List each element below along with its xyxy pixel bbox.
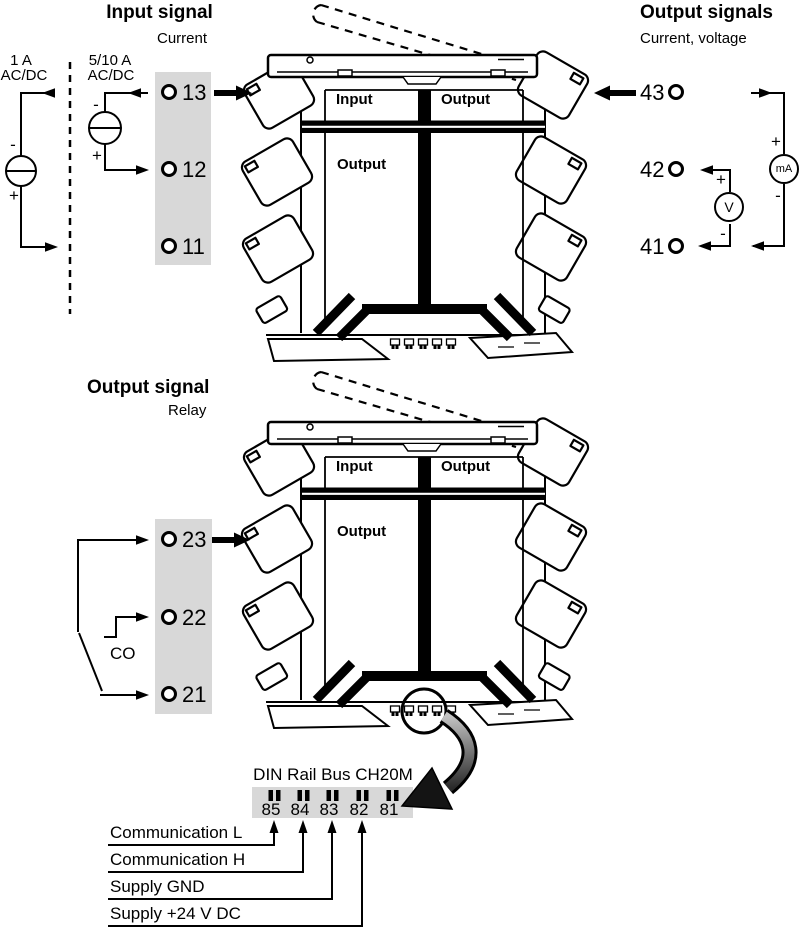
converter-module-bottom-drawing [239, 372, 590, 728]
terminal-circle-41 [668, 238, 684, 254]
terminal-circle-43 [668, 84, 684, 100]
bus-signal-communication-l: Communication L [110, 824, 242, 841]
bus-terminal-81: 81 [376, 802, 402, 818]
output-section-subheading: Current, voltage [640, 31, 747, 48]
bus-signal-supply-gnd: Supply GND [110, 878, 204, 895]
bus-arrow-82 [358, 820, 367, 833]
output-section-heading: Output signals [640, 3, 773, 24]
bus-signal-communication-h: Communication H [110, 851, 245, 868]
voltmeter-minus-sign: - [715, 226, 731, 242]
wiring-diagram-page: Input signal Current Output signals Curr… [0, 0, 800, 928]
module1-input-label: Input [336, 92, 373, 109]
milliammeter-symbol: mA [769, 154, 799, 184]
terminal-number-11: 11 [182, 236, 205, 258]
main-source-minus-sign: - [88, 97, 104, 113]
alt-source-plus-sign: + [6, 188, 22, 204]
terminal-number-42: 42 [640, 159, 664, 181]
terminal-circle-13 [161, 84, 177, 100]
bus-arrow-84 [299, 820, 308, 833]
input-section-subheading: Current [157, 31, 207, 48]
voltmeter-label: V [724, 199, 733, 215]
terminal-circle-23 [161, 531, 177, 547]
relay-section-subheading: Relay [168, 403, 206, 420]
milliammeter-top-arrow [759, 88, 772, 98]
alt-source-wiring [6, 93, 54, 247]
module2-output-bottom-label: Output [337, 524, 386, 541]
terminal-number-41: 41 [640, 236, 664, 258]
milliammeter-plus-sign: + [768, 134, 784, 150]
bus-terminal-84: 84 [287, 802, 313, 818]
voltmeter-plus-sign: + [713, 172, 729, 188]
relay-contact-label: CO [110, 645, 136, 664]
relay-nc-arrow [136, 690, 149, 700]
module2-input-label: Input [336, 459, 373, 476]
relay-co-contact-wiring [78, 540, 136, 695]
terminal-circle-11 [161, 238, 177, 254]
main-source-type: AC/DC [87, 68, 135, 85]
main-source-feed-arrow [136, 165, 149, 175]
module2-output-top-label: Output [441, 459, 490, 476]
terminal-number-21: 21 [182, 684, 206, 706]
main-source-plus-sign: + [89, 148, 105, 164]
voltmeter-bottom-arrow [698, 241, 711, 251]
alt-source-type: AC/DC [0, 68, 48, 85]
terminal-circle-21 [161, 686, 177, 702]
relay-no-arrow [136, 612, 149, 622]
voltmeter-top-arrow [700, 165, 713, 175]
terminal-number-13: 13 [182, 82, 206, 104]
bus-terminal-83: 83 [316, 802, 342, 818]
voltmeter-symbol: V [714, 192, 744, 222]
alt-source-return-arrow [42, 88, 55, 98]
milliammeter-label: mA [776, 163, 793, 175]
alt-source-minus-sign: - [5, 137, 21, 153]
terminal-circle-12 [161, 161, 177, 177]
bus-arrow-83 [328, 820, 337, 833]
main-source-return-arrow [128, 88, 141, 98]
diagram-line-art [0, 0, 800, 928]
terminal-circle-22 [161, 609, 177, 625]
converter-module-top-drawing [239, 5, 590, 361]
terminal-number-22: 22 [182, 607, 206, 629]
module1-output-top-label: Output [441, 92, 490, 109]
relay-section-heading: Output signal [87, 378, 209, 399]
milliammeter-minus-sign: - [770, 188, 786, 204]
terminal-circle-42 [668, 161, 684, 177]
alt-source-feed-arrow [45, 242, 58, 252]
terminal-number-43: 43 [640, 82, 664, 104]
bus-terminal-82: 82 [346, 802, 372, 818]
milliammeter-bottom-arrow [751, 241, 764, 251]
bus-terminal-85: 85 [258, 802, 284, 818]
terminal-number-12: 12 [182, 159, 206, 181]
terminal-number-23: 23 [182, 529, 206, 551]
module1-output-bottom-label: Output [337, 157, 386, 174]
bus-arrow-85 [270, 820, 279, 833]
input-section-heading: Input signal [97, 3, 222, 24]
bus-signal-supply-24v: Supply +24 V DC [110, 905, 241, 922]
relay-common-arrow [136, 535, 149, 545]
bus-title: DIN Rail Bus CH20M [253, 766, 413, 785]
